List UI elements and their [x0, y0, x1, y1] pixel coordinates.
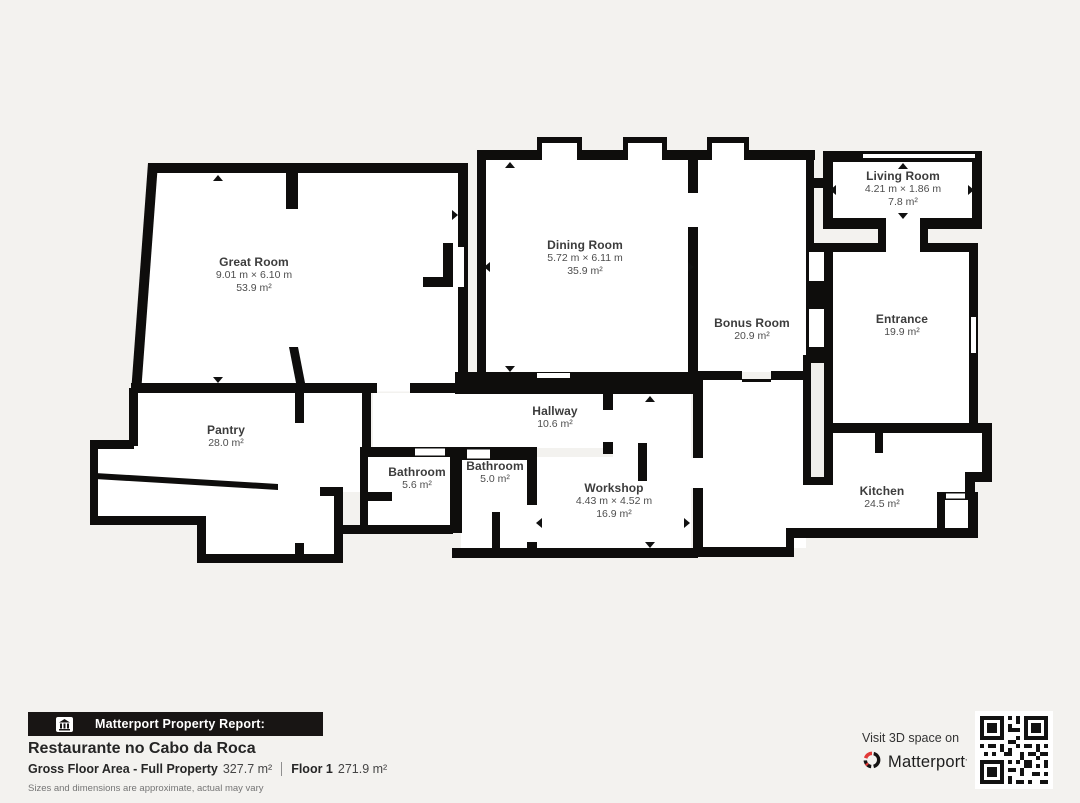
living-room-floor: [833, 162, 972, 219]
matterport-logo-icon: [862, 750, 882, 775]
trademark-mark: ’: [965, 758, 967, 767]
rear-room-floor: [703, 380, 806, 548]
entrance-floor: [833, 252, 969, 424]
building-icon: [56, 717, 73, 732]
report-header-bar: Matterport Property Report:: [28, 712, 323, 736]
bathroom-1-floor: [368, 457, 450, 526]
kitchen-floor: [832, 433, 982, 528]
floor-area-value: 271.9 m²: [338, 762, 387, 776]
great-room-floor: [137, 170, 462, 386]
floorplan-drawing: [0, 0, 1080, 803]
kitchen-link-floor: [806, 485, 832, 528]
property-name: Restaurante no Cabo da Roca: [28, 740, 256, 758]
living-entrance-neck-floor: [886, 219, 920, 252]
gross-floor-area-value: 327.7 m²: [223, 762, 272, 776]
floorplan-report-page: Great Room 9.01 m × 6.10 m 53.9 m² Dinin…: [0, 0, 1080, 803]
hallway-floor: [373, 393, 603, 448]
disclaimer-text: Sizes and dimensions are approximate, ac…: [28, 783, 264, 794]
dining-room-floor: [486, 159, 688, 373]
bonus-room-floor: [697, 160, 806, 372]
matterport-wordmark: Matterport: [888, 753, 965, 772]
area-stats: Gross Floor Area - Full Property 327.7 m…: [28, 762, 387, 776]
visit-3d-text: Visit 3D space on: [862, 731, 962, 745]
visit-3d-block: Visit 3D space on Matterport’: [862, 731, 962, 775]
matterport-brand: Matterport’: [862, 750, 962, 775]
floor-label: Floor 1: [291, 762, 333, 776]
void-shaft: [811, 363, 824, 477]
report-bar-label: Matterport Property Report:: [95, 717, 265, 731]
stats-divider: [281, 762, 282, 776]
gross-floor-area-label: Gross Floor Area - Full Property: [28, 762, 218, 776]
qr-code: [975, 711, 1053, 789]
